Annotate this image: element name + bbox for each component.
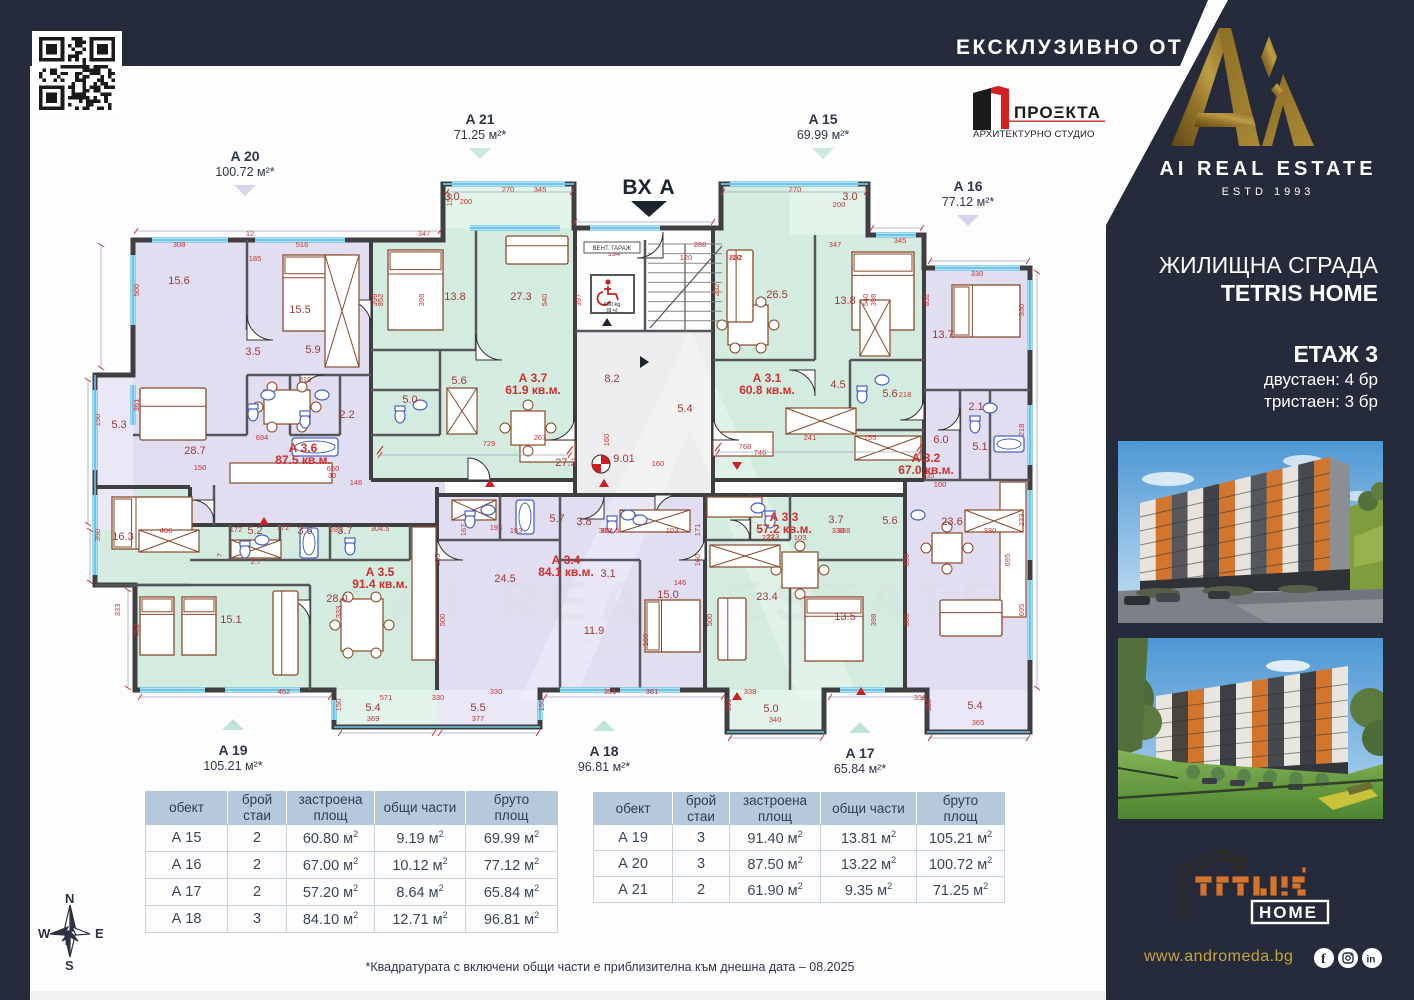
svg-text:193: 193 xyxy=(510,526,523,535)
svg-text:333: 333 xyxy=(334,606,343,619)
svg-text:397: 397 xyxy=(574,294,583,307)
svg-text:3.7: 3.7 xyxy=(828,514,843,526)
svg-text:A 18: A 18 xyxy=(589,743,618,759)
svg-text:120: 120 xyxy=(680,253,693,262)
svg-text:105.21 м²*: 105.21 м²* xyxy=(203,759,262,773)
svg-text:160: 160 xyxy=(724,699,733,712)
svg-text:167: 167 xyxy=(459,524,468,537)
svg-text:155: 155 xyxy=(433,554,442,567)
svg-text:6.0: 6.0 xyxy=(933,434,948,446)
svg-text:28.7: 28.7 xyxy=(184,445,205,457)
svg-text:77.12 м²*: 77.12 м²* xyxy=(942,195,995,209)
svg-text:9.01: 9.01 xyxy=(613,453,634,465)
svg-text:A 21: A 21 xyxy=(465,111,494,127)
svg-text:304.5: 304.5 xyxy=(371,524,390,533)
svg-text:286: 286 xyxy=(694,240,707,249)
svg-text:16.3: 16.3 xyxy=(112,531,133,543)
svg-text:172: 172 xyxy=(230,525,243,534)
svg-text:13.8: 13.8 xyxy=(834,295,855,307)
svg-text:160: 160 xyxy=(641,634,650,647)
svg-text:3.6: 3.6 xyxy=(297,525,312,537)
svg-text:A 20: A 20 xyxy=(230,148,259,164)
svg-text:71.25 м²*: 71.25 м²* xyxy=(454,128,507,142)
svg-text:27.3: 27.3 xyxy=(510,291,531,303)
svg-text:852: 852 xyxy=(376,294,385,307)
svg-text:500: 500 xyxy=(438,614,447,627)
svg-text:A 17: A 17 xyxy=(845,745,874,761)
svg-text:11.9: 11.9 xyxy=(584,625,605,637)
svg-text:146: 146 xyxy=(350,478,363,487)
svg-text:398: 398 xyxy=(869,614,878,627)
svg-text:13.8: 13.8 xyxy=(444,291,465,303)
svg-text:5.1: 5.1 xyxy=(972,441,987,453)
svg-text:23.4: 23.4 xyxy=(756,591,777,603)
svg-text:695: 695 xyxy=(1003,554,1012,567)
svg-text:695: 695 xyxy=(1017,604,1026,617)
svg-text:5.0: 5.0 xyxy=(763,703,778,715)
svg-text:12: 12 xyxy=(246,229,254,238)
svg-text:361: 361 xyxy=(132,399,141,412)
svg-text:377: 377 xyxy=(472,714,485,723)
svg-text:5.3: 5.3 xyxy=(111,419,126,431)
svg-text:87.5 кв.м.: 87.5 кв.м. xyxy=(275,453,331,467)
svg-text:ВХ А: ВХ А xyxy=(622,176,675,199)
svg-text:A 15: A 15 xyxy=(808,111,837,127)
svg-text:146: 146 xyxy=(674,578,687,587)
svg-text:200: 200 xyxy=(460,197,473,206)
svg-text:27.3: 27.3 xyxy=(555,457,576,469)
svg-text:5.4: 5.4 xyxy=(365,702,380,714)
svg-text:4.5: 4.5 xyxy=(830,379,845,391)
svg-text:340: 340 xyxy=(769,715,782,724)
svg-text:345: 345 xyxy=(534,185,547,194)
svg-text:61.9 кв.м.: 61.9 кв.м. xyxy=(505,383,561,397)
svg-text:3.5: 3.5 xyxy=(245,346,260,358)
svg-text:15.0: 15.0 xyxy=(657,589,678,601)
svg-text:218: 218 xyxy=(1017,424,1026,437)
svg-text:694: 694 xyxy=(256,433,269,442)
svg-text:ВЕНТ. ГАРАЖ: ВЕНТ. ГАРАЖ xyxy=(593,246,632,252)
svg-text:267: 267 xyxy=(534,433,547,442)
svg-text:350: 350 xyxy=(93,529,102,542)
svg-text:516: 516 xyxy=(296,240,309,249)
svg-text:351: 351 xyxy=(604,687,617,696)
svg-text:185: 185 xyxy=(249,254,262,263)
svg-text:746: 746 xyxy=(754,448,767,457)
svg-text:26.5: 26.5 xyxy=(766,289,787,301)
svg-text:5.5: 5.5 xyxy=(470,702,485,714)
svg-text:333: 333 xyxy=(113,604,122,617)
svg-text:361: 361 xyxy=(646,687,659,696)
svg-text:500: 500 xyxy=(132,284,141,297)
svg-text:218: 218 xyxy=(899,390,912,399)
svg-text:540: 540 xyxy=(540,294,549,307)
svg-text:500: 500 xyxy=(705,614,714,627)
svg-text:5.0: 5.0 xyxy=(402,394,417,406)
svg-text:308: 308 xyxy=(173,240,186,249)
svg-text:398: 398 xyxy=(417,294,426,307)
svg-text:452: 452 xyxy=(132,624,141,637)
svg-text:270: 270 xyxy=(502,185,515,194)
svg-text:338: 338 xyxy=(832,526,845,535)
svg-text:365: 365 xyxy=(972,718,985,727)
svg-text:5.9: 5.9 xyxy=(305,344,320,356)
svg-text:13.5: 13.5 xyxy=(834,611,855,623)
svg-text:398: 398 xyxy=(869,294,878,307)
svg-text:330: 330 xyxy=(432,693,445,702)
svg-text:100: 100 xyxy=(934,480,947,489)
svg-text:8.2: 8.2 xyxy=(604,373,619,385)
svg-text:96.81 м²*: 96.81 м²* xyxy=(578,760,631,774)
svg-text:150: 150 xyxy=(537,699,546,712)
svg-text:A 16: A 16 xyxy=(953,178,982,194)
svg-text:160: 160 xyxy=(693,554,702,567)
svg-text:160: 160 xyxy=(602,434,611,447)
svg-text:28.0: 28.0 xyxy=(326,593,347,605)
svg-text:270: 270 xyxy=(789,185,802,194)
svg-text:91.4 кв.м.: 91.4 кв.м. xyxy=(352,577,408,591)
svg-text:285: 285 xyxy=(330,525,343,534)
svg-text:30: 30 xyxy=(328,471,336,480)
svg-text:345: 345 xyxy=(894,236,907,245)
svg-text:A 19: A 19 xyxy=(218,742,247,758)
svg-text:768: 768 xyxy=(739,442,752,451)
svg-text:729: 729 xyxy=(483,439,496,448)
svg-text:150: 150 xyxy=(334,699,343,712)
svg-text:3.1: 3.1 xyxy=(600,568,615,580)
svg-text:150: 150 xyxy=(924,699,933,712)
svg-text:330: 330 xyxy=(971,269,984,278)
svg-text:15.1: 15.1 xyxy=(220,614,241,626)
svg-text:23.6: 23.6 xyxy=(941,516,962,528)
svg-text:5.4: 5.4 xyxy=(677,403,692,415)
svg-text:193: 193 xyxy=(490,523,503,532)
svg-text:65.84 м²*: 65.84 м²* xyxy=(834,762,887,776)
svg-text:304.5: 304.5 xyxy=(601,526,620,535)
svg-text:160: 160 xyxy=(652,459,665,468)
svg-text:100.72 м²*: 100.72 м²* xyxy=(215,165,274,179)
svg-text:300: 300 xyxy=(902,614,911,627)
svg-text:235: 235 xyxy=(922,471,935,480)
svg-text:172: 172 xyxy=(277,523,290,532)
svg-text:7: 7 xyxy=(215,553,224,557)
svg-text:338: 338 xyxy=(744,687,757,696)
svg-text:347: 347 xyxy=(418,229,431,238)
svg-text:24.5: 24.5 xyxy=(494,573,515,585)
svg-text:232: 232 xyxy=(712,284,721,297)
svg-text:2.7: 2.7 xyxy=(251,557,261,566)
svg-text:5.4: 5.4 xyxy=(967,700,982,712)
svg-text:5.7: 5.7 xyxy=(549,513,564,525)
svg-text:852: 852 xyxy=(922,294,931,307)
svg-text:571: 571 xyxy=(380,693,393,702)
svg-text:5.6: 5.6 xyxy=(451,375,466,387)
svg-text:84.1 кв.м.: 84.1 кв.м. xyxy=(538,565,594,579)
svg-text:300: 300 xyxy=(902,554,911,567)
svg-text:5.6: 5.6 xyxy=(882,388,897,400)
svg-text:3.0: 3.0 xyxy=(842,191,857,203)
svg-text:347: 347 xyxy=(829,240,842,249)
svg-text:223: 223 xyxy=(762,533,775,542)
svg-text:103: 103 xyxy=(794,533,807,542)
svg-text:(8 ч): (8 ч) xyxy=(606,308,617,314)
svg-text:369: 369 xyxy=(367,714,380,723)
svg-text:60.8 кв.м.: 60.8 кв.м. xyxy=(739,383,795,397)
svg-text:103: 103 xyxy=(666,526,679,535)
svg-text:2.2: 2.2 xyxy=(339,409,354,421)
svg-text:150: 150 xyxy=(194,463,207,472)
svg-text:330: 330 xyxy=(1017,304,1026,317)
svg-text:241: 241 xyxy=(804,433,817,442)
svg-text:13.7: 13.7 xyxy=(932,329,953,341)
svg-text:452: 452 xyxy=(278,687,291,696)
svg-text:852: 852 xyxy=(730,253,743,262)
svg-text:233: 233 xyxy=(1017,514,1026,527)
svg-text:171: 171 xyxy=(693,524,702,537)
svg-text:155: 155 xyxy=(864,433,877,442)
svg-text:330: 330 xyxy=(984,526,997,535)
svg-text:5.2: 5.2 xyxy=(247,525,262,537)
svg-text:2.1: 2.1 xyxy=(968,401,983,413)
svg-text:319: 319 xyxy=(299,375,312,384)
svg-text:466: 466 xyxy=(160,526,173,535)
svg-text:15.6: 15.6 xyxy=(168,275,189,287)
svg-text:15.5: 15.5 xyxy=(289,304,310,316)
svg-text:5.6: 5.6 xyxy=(882,515,897,527)
svg-text:69.99 м²*: 69.99 м²* xyxy=(797,128,850,142)
svg-text:330: 330 xyxy=(490,687,503,696)
